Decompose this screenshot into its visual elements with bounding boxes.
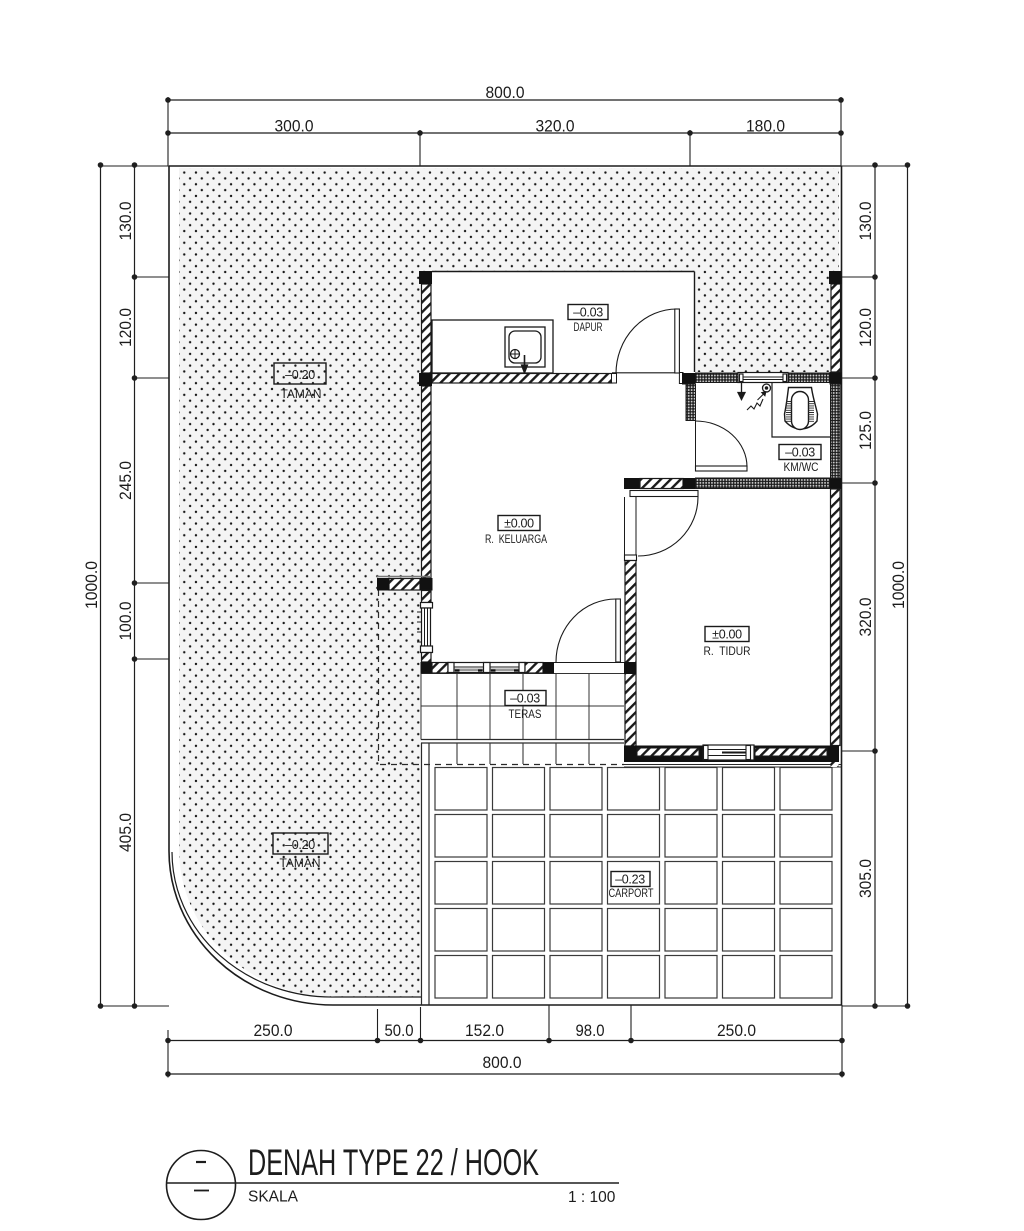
svg-text:125.0: 125.0 [857, 411, 875, 450]
svg-text:DAPUR: DAPUR [574, 320, 603, 334]
svg-text:±0.00: ±0.00 [504, 517, 534, 531]
svg-text:TERAS: TERAS [509, 707, 542, 721]
svg-text:320.0: 320.0 [857, 598, 875, 637]
svg-text:180.0: 180.0 [746, 118, 785, 136]
svg-text:305.0: 305.0 [857, 859, 875, 898]
svg-text:130.0: 130.0 [857, 202, 875, 241]
svg-text:R. KELUARGA: R. KELUARGA [485, 532, 548, 546]
svg-text:DENAH TYPE 22 / HOOK: DENAH TYPE 22 / HOOK [248, 1142, 539, 1183]
svg-text:300.0: 300.0 [275, 118, 314, 136]
svg-text:50.0: 50.0 [385, 1022, 414, 1040]
svg-text:120.0: 120.0 [117, 308, 135, 347]
svg-text:1 : 100: 1 : 100 [568, 1189, 616, 1206]
svg-text:1000.0: 1000.0 [83, 561, 101, 609]
svg-text:152.0: 152.0 [465, 1022, 504, 1040]
svg-text:–0.20: –0.20 [285, 838, 315, 852]
svg-text:800.0: 800.0 [486, 84, 525, 102]
svg-text:KM/WC: KM/WC [784, 460, 819, 474]
svg-text:–0.03: –0.03 [510, 692, 540, 706]
svg-text:250.0: 250.0 [717, 1022, 756, 1040]
svg-text:–0.03: –0.03 [573, 306, 603, 320]
svg-text:130.0: 130.0 [117, 202, 135, 241]
svg-text:–0.20: –0.20 [285, 368, 315, 382]
svg-text:±0.00: ±0.00 [712, 628, 742, 642]
svg-text:245.0: 245.0 [117, 461, 135, 500]
svg-text:405.0: 405.0 [117, 813, 135, 852]
svg-text:100.0: 100.0 [117, 602, 135, 641]
svg-text:120.0: 120.0 [857, 308, 875, 347]
svg-text:250.0: 250.0 [254, 1022, 293, 1040]
svg-text:SKALA: SKALA [248, 1189, 299, 1206]
svg-text:–0.03: –0.03 [785, 446, 815, 460]
svg-text:98.0: 98.0 [576, 1022, 605, 1040]
svg-text:R. TIDUR: R. TIDUR [704, 644, 751, 658]
svg-text:1000.0: 1000.0 [890, 561, 908, 609]
svg-text:800.0: 800.0 [483, 1054, 522, 1072]
svg-text:TAMAN: TAMAN [280, 856, 321, 870]
svg-text:CARPORT: CARPORT [609, 886, 654, 900]
svg-text:320.0: 320.0 [536, 118, 575, 136]
svg-text:–0.23: –0.23 [615, 873, 645, 887]
svg-text:TAMAN: TAMAN [281, 387, 322, 401]
